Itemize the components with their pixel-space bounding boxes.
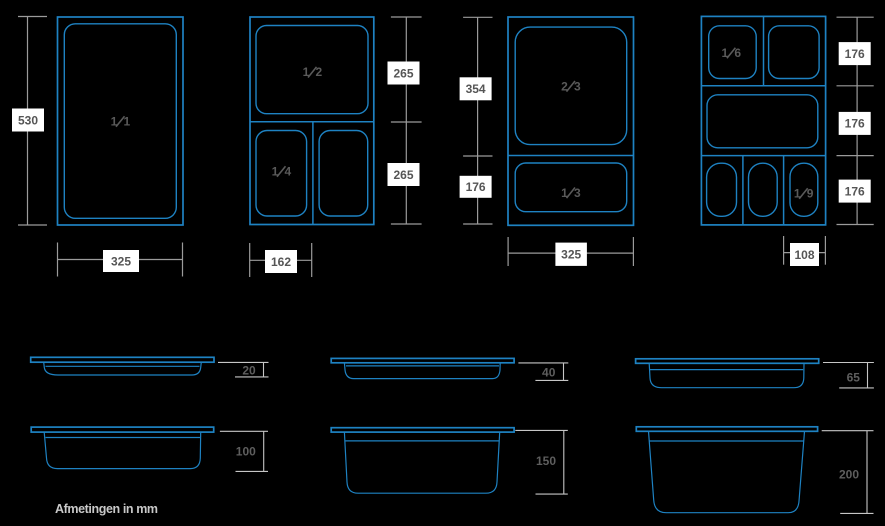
svg-text:265: 265 bbox=[393, 168, 413, 182]
svg-text:65: 65 bbox=[847, 371, 861, 385]
svg-text:176: 176 bbox=[845, 117, 865, 131]
svg-text:20: 20 bbox=[242, 363, 256, 377]
svg-text:200: 200 bbox=[839, 467, 859, 481]
svg-text:Afmetingen in mm: Afmetingen in mm bbox=[55, 502, 158, 516]
svg-text:108: 108 bbox=[794, 248, 814, 262]
svg-text:530: 530 bbox=[18, 113, 38, 127]
svg-text:265: 265 bbox=[393, 66, 413, 80]
svg-text:325: 325 bbox=[561, 248, 581, 262]
svg-text:176: 176 bbox=[466, 180, 486, 194]
svg-text:325: 325 bbox=[111, 254, 131, 268]
svg-text:354: 354 bbox=[466, 82, 486, 96]
svg-text:40: 40 bbox=[542, 366, 556, 380]
svg-text:162: 162 bbox=[271, 255, 291, 269]
svg-text:150: 150 bbox=[536, 454, 556, 468]
svg-text:176: 176 bbox=[845, 184, 865, 198]
svg-text:100: 100 bbox=[236, 445, 256, 459]
svg-text:176: 176 bbox=[845, 47, 865, 61]
